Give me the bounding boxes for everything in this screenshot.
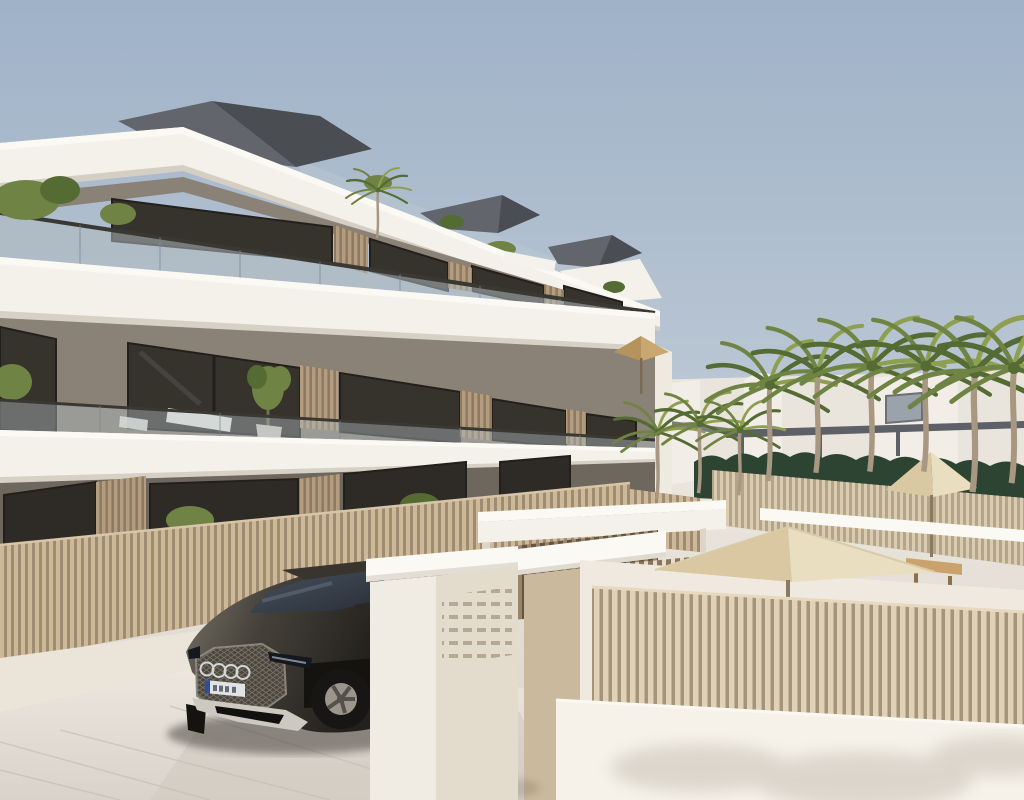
pergola-post (896, 430, 900, 456)
background-building-window (886, 393, 922, 423)
architectural-render (0, 0, 1024, 800)
ventilation-grid (442, 587, 512, 666)
lintel-post (700, 528, 706, 553)
render-canvas (0, 0, 1024, 800)
front-wheel (311, 669, 371, 729)
white-pillar-front (370, 576, 436, 800)
